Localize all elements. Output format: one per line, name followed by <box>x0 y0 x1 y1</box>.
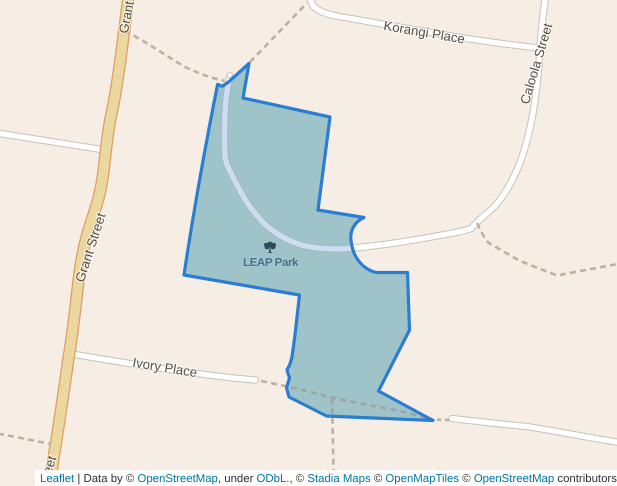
svg-text:LEAP Park: LEAP Park <box>243 256 299 269</box>
svg-text:Leaflet | Data by © OpenStreet: Leaflet | Data by © OpenStreetMap, under… <box>40 473 617 485</box>
